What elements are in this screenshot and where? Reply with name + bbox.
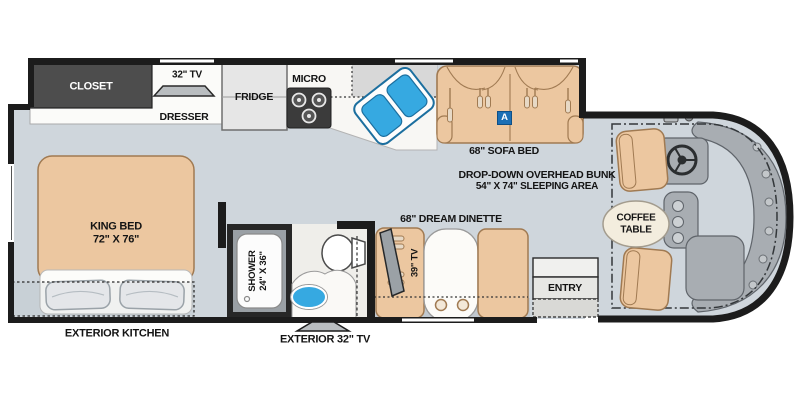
bunk-label-line1: DROP-DOWN OVERHEAD BUNK: [459, 169, 616, 181]
sofa-option-badge: A: [497, 111, 512, 125]
closet-label: CLOSET: [69, 81, 112, 94]
exterior-tv-label: EXTERIOR 32" TV: [280, 334, 370, 347]
tv-32-icon: [154, 86, 214, 96]
king-bed-label-line1: KING BED: [90, 220, 142, 233]
tv-39-label: 39" TV: [411, 249, 422, 277]
dresser-label: DRESSER: [159, 111, 208, 123]
driver-seat: [615, 128, 668, 192]
shower-label-line2: 24" X 36": [259, 250, 270, 291]
tv-32-label: 32" TV: [172, 69, 202, 81]
exterior-kitchen-zone: [12, 282, 194, 316]
passenger-seat: [619, 247, 672, 311]
sofa-bed-label: 68" SOFA BED: [469, 145, 539, 157]
fridge-label: FRIDGE: [235, 91, 273, 103]
king-bed-label: KING BED 72" X 76": [90, 220, 142, 245]
bunk-label-line2: 54" X 74" SLEEPING AREA: [459, 181, 616, 193]
micro-label: MICRO: [292, 73, 326, 85]
bath-sink-icon: [292, 286, 326, 308]
dinette: [372, 228, 530, 321]
bath-vanity: [291, 270, 357, 318]
shower-label: SHOWER 24" X 36": [248, 250, 270, 291]
rv-floorplan: CLOSET 32" TV DRESSER FRIDGE MICRO 68" S…: [0, 0, 800, 400]
coffee-table-label: COFFEE TABLE: [616, 213, 655, 236]
exterior-kitchen-label: EXTERIOR KITCHEN: [65, 328, 169, 341]
entry-label: ENTRY: [548, 282, 582, 294]
exterior-tv-icon: [297, 322, 349, 331]
bunk-label: DROP-DOWN OVERHEAD BUNK 54" X 74" SLEEPI…: [459, 169, 616, 193]
dinette-table: [424, 229, 478, 321]
cooktop-icon: [287, 88, 331, 128]
coffee-table-label-line2: TABLE: [616, 224, 655, 236]
dinette-label: 68" DREAM DINETTE: [400, 213, 502, 225]
sofa-bed: [437, 66, 583, 143]
king-bed-label-line2: 72" X 76": [90, 233, 142, 246]
toilet-icon: [322, 235, 365, 271]
coffee-table-label-line1: COFFEE: [616, 213, 655, 225]
